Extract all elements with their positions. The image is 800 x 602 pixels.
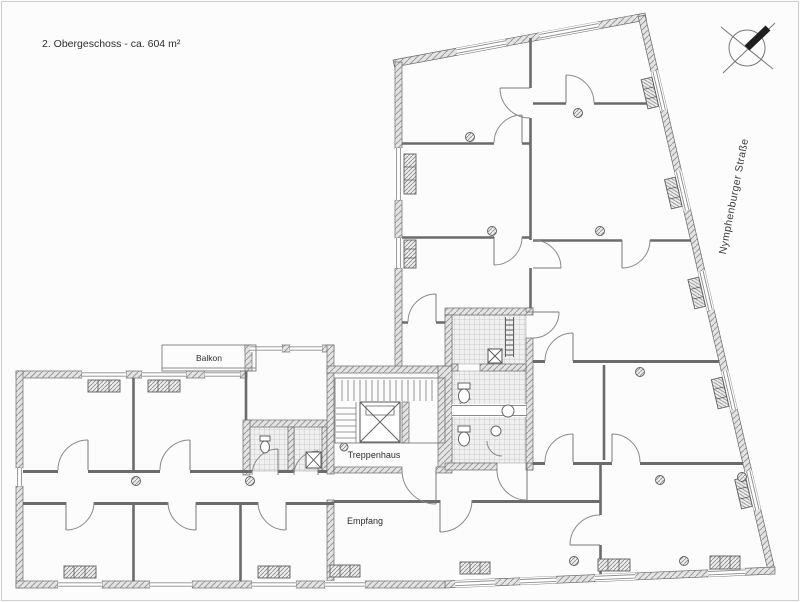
interior-walls — [23, 38, 743, 581]
balcony-label: Balkon — [196, 353, 222, 363]
floor-plan-drawing: 2. Obergeschoss - ca. 604 m² Nymphenburg… — [0, 0, 800, 602]
street-label: Nymphenburger Straße — [717, 138, 751, 256]
floor-plan-page: 2. Obergeschoss - ca. 604 m² Nymphenburg… — [0, 0, 800, 602]
doors — [58, 75, 650, 545]
elevator-icon — [360, 402, 400, 442]
columns — [132, 109, 747, 566]
reception-label: Empfang — [347, 516, 383, 526]
north-compass-icon — [721, 23, 775, 73]
stairwell-label: Treppenhaus — [348, 450, 401, 460]
page-title: 2. Obergeschoss - ca. 604 m² — [42, 38, 181, 50]
